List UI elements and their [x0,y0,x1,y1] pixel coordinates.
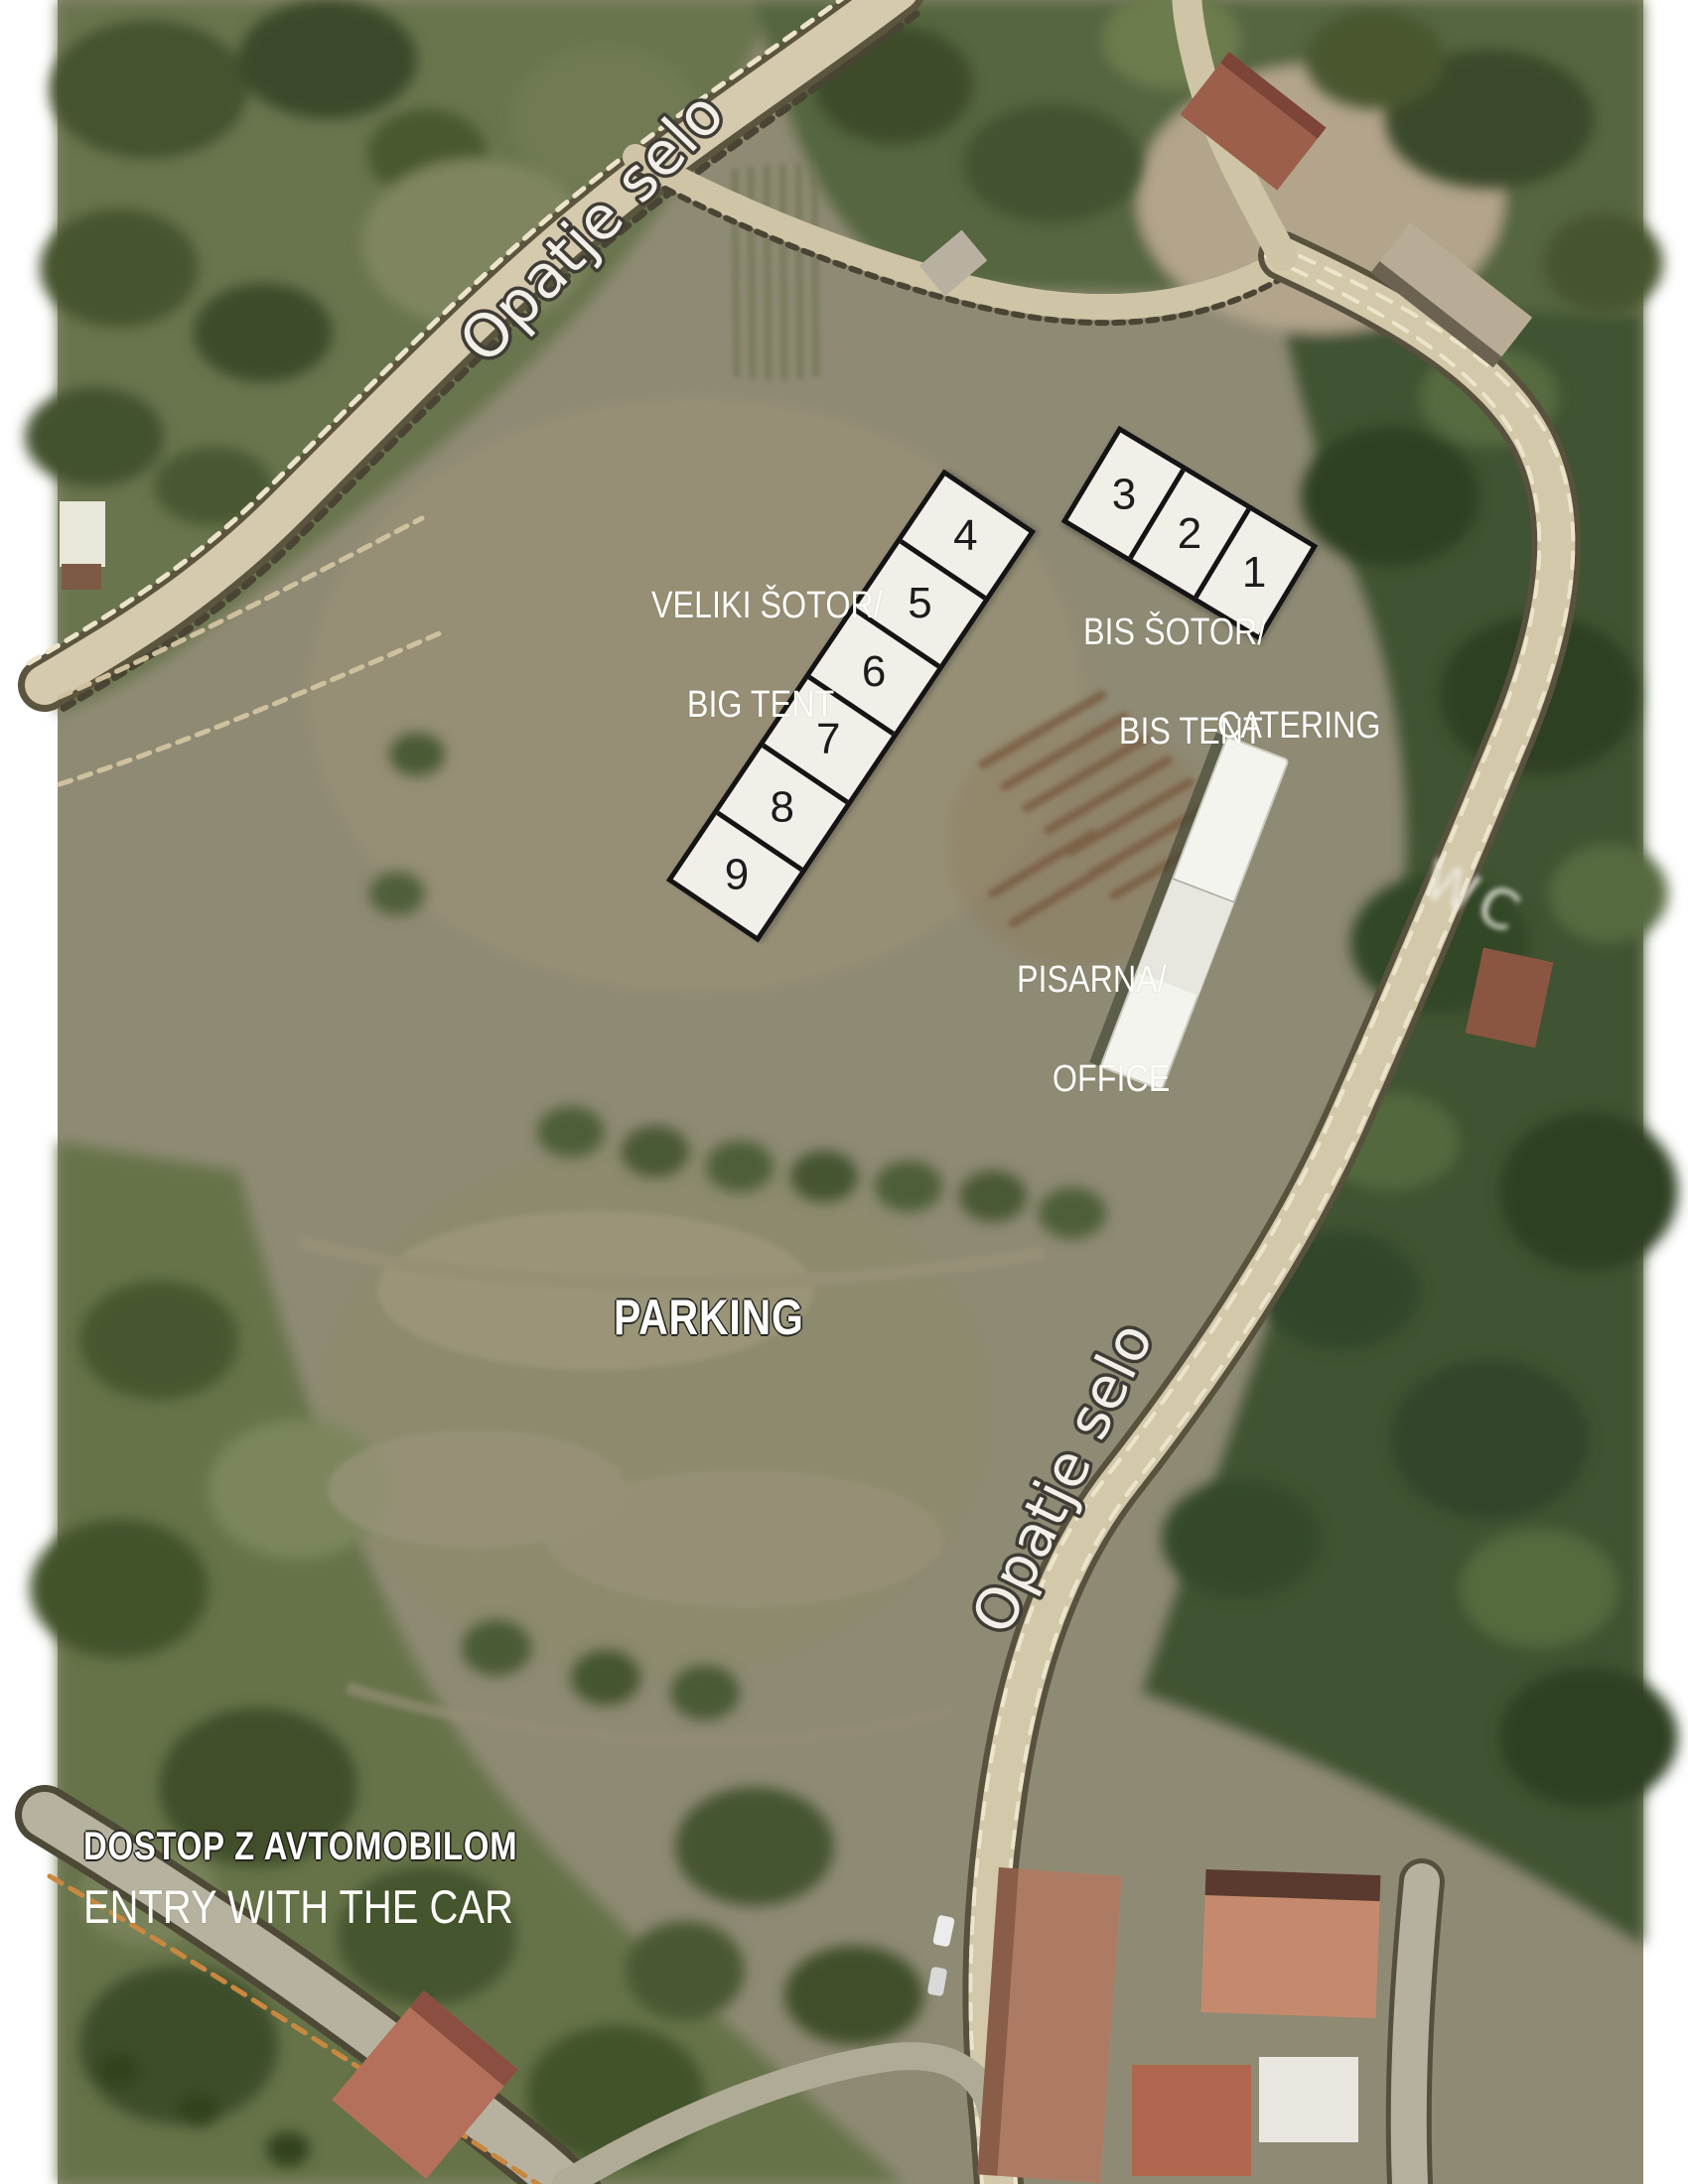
site-map: Opatje selo Opatje selo WC 9 8 7 6 5 4 3… [0,0,1688,2184]
tent-plot-number: 5 [908,579,931,628]
office-label: PISARNA/ OFFICE [1017,955,1170,1104]
parking-label: PARKING [614,1289,804,1346]
catering-label-text: CATERING [1217,705,1381,747]
bis-tent-label-line1: BIS ŠOTOR/ [1083,612,1266,653]
tent-plot-number: 9 [724,851,748,900]
office-label-line1: PISARNA/ [1017,959,1167,1001]
office-label-line2: OFFICE [1053,1058,1170,1100]
catering-label: CATERING [1217,701,1381,751]
tent-plot-number: 3 [1112,470,1136,519]
big-tent-label: VELIKI ŠOTOR/ BIG TENT [651,581,883,730]
big-tent-label-line1: VELIKI ŠOTOR/ [651,585,883,626]
tent-plot-number: 1 [1242,548,1266,598]
road-bottom-right [1409,1881,1422,2184]
tent-plot-number: 2 [1178,508,1201,558]
entry-label-slovenian: DOSTOP Z AVTOMOBILOM [83,1825,517,1869]
tent-plot-number: 8 [771,783,794,833]
tent-plot-number: 4 [953,511,977,561]
entry-label-english: ENTRY WITH THE CAR [83,1876,513,1938]
big-tent-label-line2: BIG TENT [687,684,834,726]
building-left-farm [60,501,105,590]
